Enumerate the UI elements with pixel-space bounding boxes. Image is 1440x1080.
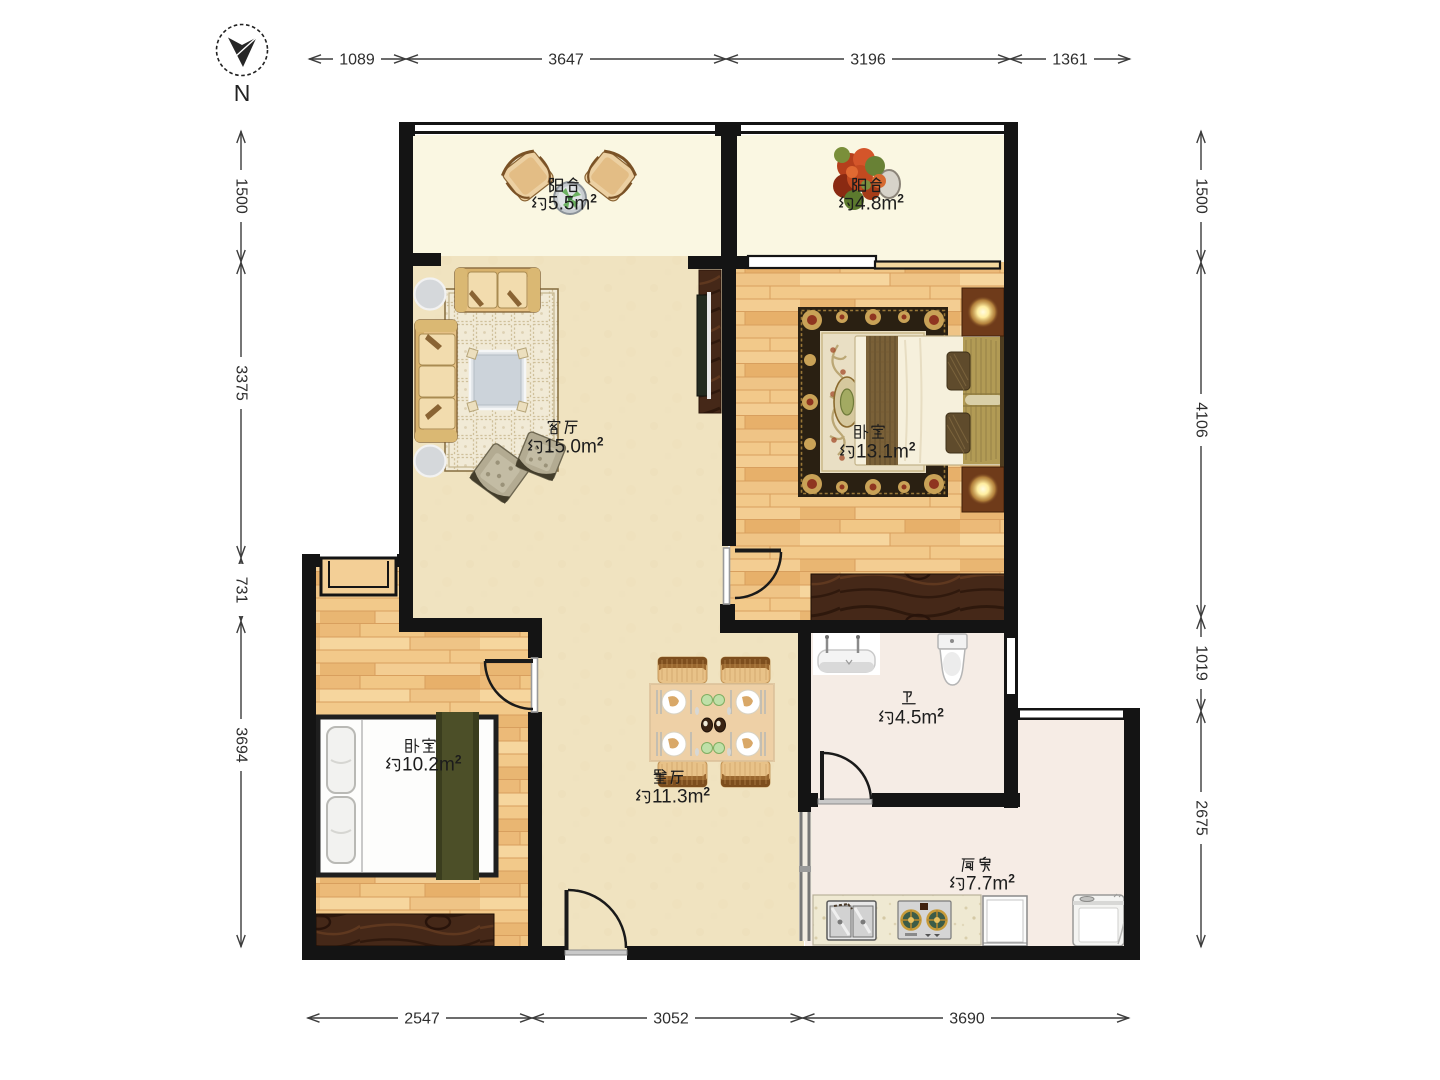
svg-text:1500: 1500 [1193,178,1210,214]
svg-text:3647: 3647 [548,52,584,69]
svg-text:1019: 1019 [1193,645,1210,681]
svg-text:3196: 3196 [850,52,886,69]
svg-text:11.3m2: 11.3m2 [652,785,710,808]
svg-text:7.7m2: 7.7m2 [966,872,1015,895]
svg-text:4.5m2: 4.5m2 [895,706,944,729]
svg-text:3375: 3375 [233,365,250,401]
svg-text:2547: 2547 [404,1011,440,1028]
svg-text:1089: 1089 [339,52,375,69]
svg-text:4106: 4106 [1193,402,1210,438]
svg-text:N: N [234,80,251,106]
svg-text:1500: 1500 [233,178,250,214]
svg-text:10.2m2: 10.2m2 [402,753,462,776]
svg-text:5.5m2: 5.5m2 [548,192,597,215]
svg-text:3052: 3052 [653,1011,689,1028]
svg-text:15.0m2: 15.0m2 [544,435,604,458]
svg-text:3690: 3690 [949,1011,985,1028]
svg-text:731: 731 [233,577,250,604]
svg-text:2675: 2675 [1193,800,1210,836]
svg-text:4.8m2: 4.8m2 [855,192,904,215]
svg-text:1361: 1361 [1052,52,1088,69]
svg-text:3694: 3694 [233,727,250,763]
svg-text:13.1m2: 13.1m2 [856,440,916,463]
